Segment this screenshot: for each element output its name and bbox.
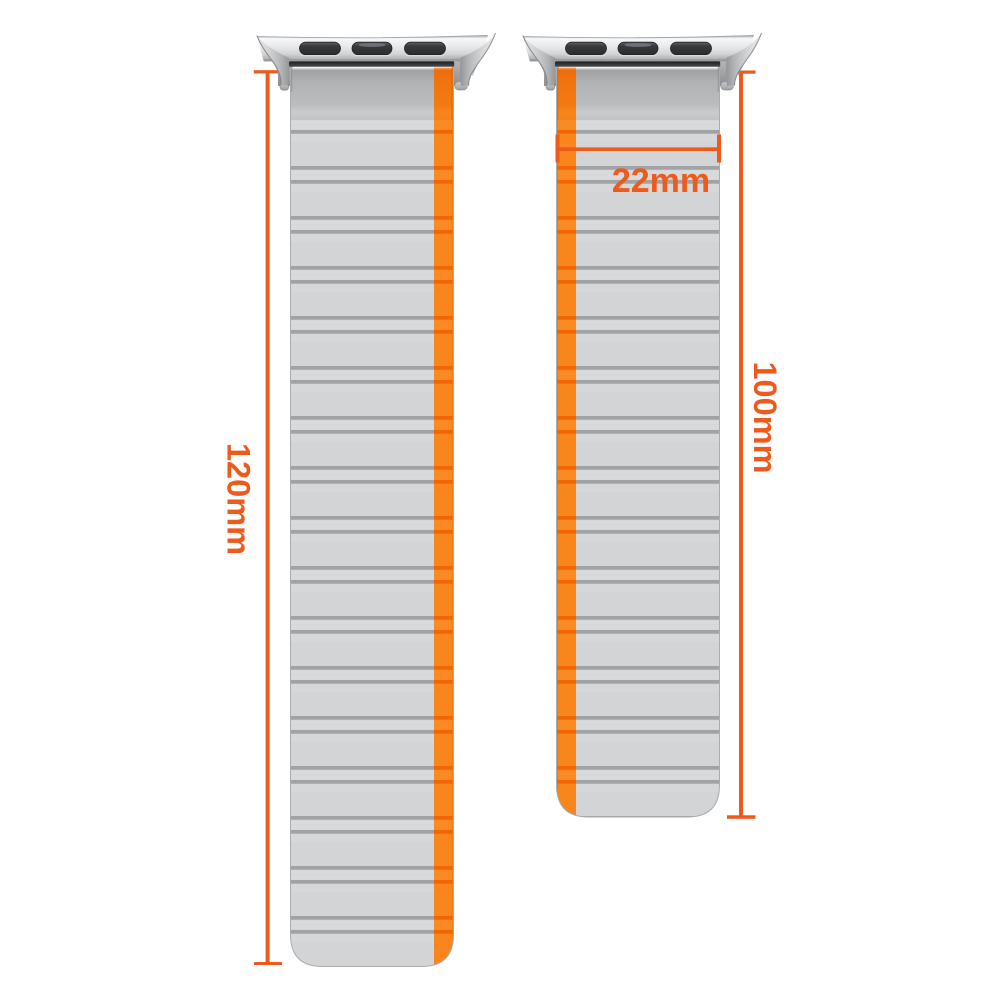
svg-text:100mm: 100mm (747, 361, 783, 473)
svg-text:22mm: 22mm (612, 162, 710, 200)
svg-text:120mm: 120mm (221, 443, 257, 555)
